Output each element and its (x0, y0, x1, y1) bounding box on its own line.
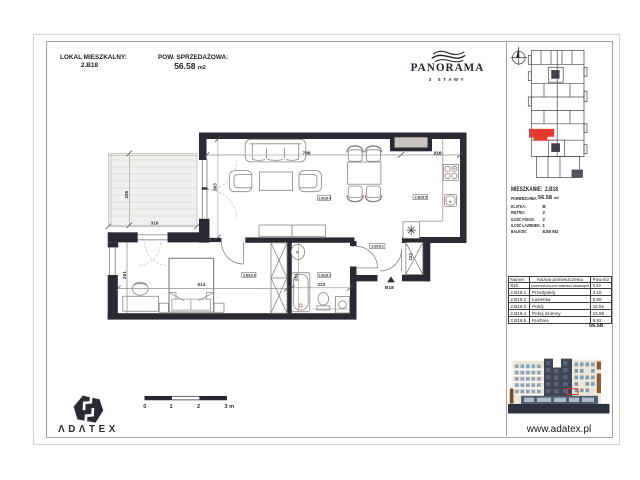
svg-text:2: 2 (197, 404, 200, 410)
svg-text:1: 1 (170, 404, 173, 410)
svg-text:0: 0 (143, 404, 146, 410)
svg-text:3 m: 3 m (225, 404, 235, 410)
